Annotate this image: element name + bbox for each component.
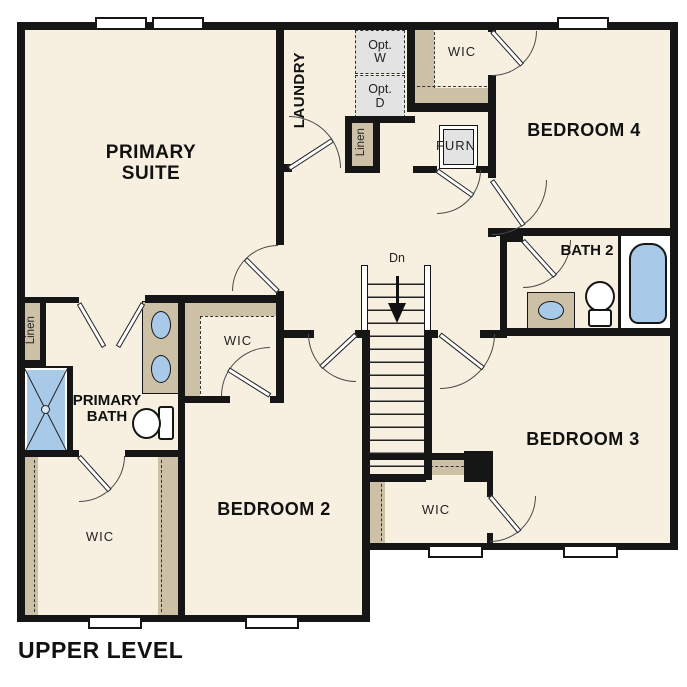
shelf-dash [381,479,382,541]
wall [17,22,25,622]
stairs-down-label: Dn [382,252,412,266]
window [563,545,618,558]
wall [17,450,79,457]
stair-arrow-head [388,303,406,323]
shower-drain [41,405,50,414]
wall [17,615,370,622]
wic-primary-shelf-left [25,457,38,615]
wic-top-label: WIC [440,45,484,59]
furnace-label: FURN [428,139,484,153]
optional-washer-label: Opt. W [363,39,397,65]
wall [17,360,46,366]
wall [40,303,46,362]
window [557,17,609,30]
shelf-dash [430,466,464,467]
shelf-dash [417,86,487,87]
plan-title: UPPER LEVEL [18,637,183,664]
primary-suite-label: PRIMARY SUITE [86,143,216,184]
wic-bed2-shelf-left [185,316,200,396]
wall [500,328,678,336]
bedroom3-label: BEDROOM 3 [513,430,653,449]
wall [500,236,507,330]
wall [125,450,185,457]
bedroom4-label: BEDROOM 4 [514,121,654,140]
wall [178,295,185,622]
optional-dryer-label: Opt. D [363,83,397,109]
wic-bed2-shelf-top [185,303,276,316]
primary-sink [151,355,171,383]
chase [464,451,493,482]
window [88,616,142,629]
wall [270,396,284,403]
wall [407,22,415,112]
shelf-dash [200,316,274,317]
window [245,616,299,629]
wall [345,116,352,173]
primary-bath-label: PRIMARY BATH [62,393,152,425]
stair-rail [361,265,368,331]
window [152,17,204,30]
wall [407,103,496,112]
wic-top-shelf-bottom [415,88,488,103]
bathtub [629,243,667,324]
bath2-sink [538,301,564,320]
linen-left-label: Linen [25,310,37,350]
primary-sink [151,311,171,339]
floor-lower-left [17,550,370,622]
shelf-dash [161,460,162,612]
wall [276,22,284,245]
wall [488,75,496,178]
linen-top-label: Linen [355,122,367,162]
tub-divider-wall [618,236,621,330]
stair-rail [424,265,431,331]
wic-primary-label: WIC [78,530,122,544]
wall [345,166,380,173]
window [428,545,483,558]
wall [178,295,276,303]
shelf-dash [200,316,201,394]
wic-top-shelf-left [415,30,434,88]
wall [362,543,678,550]
window [95,17,147,30]
wall [276,291,284,402]
wic-bed3-shelf-left [370,477,385,543]
laundry-label: LAUNDRY [292,35,308,145]
bath2-toilet-bowl [585,281,615,312]
wall [17,297,79,303]
wall [178,396,230,403]
bedroom2-label: BEDROOM 2 [204,500,344,519]
stair-arrow-stem [396,276,399,306]
wic-bedroom2-label: WIC [216,334,260,348]
shelf-dash [434,32,435,88]
wall [413,166,437,173]
wall [670,22,678,550]
optional-washer-box: Opt. W [355,30,405,74]
wall [368,474,426,482]
wic-bedroom3-label: WIC [414,503,458,517]
bath2-toilet-tank [588,309,612,327]
optional-dryer-box: Opt. D [355,75,405,118]
shelf-dash [34,460,35,612]
bath2-label: BATH 2 [558,243,616,259]
floor-plan: Opt. W Opt. D [0,0,687,687]
